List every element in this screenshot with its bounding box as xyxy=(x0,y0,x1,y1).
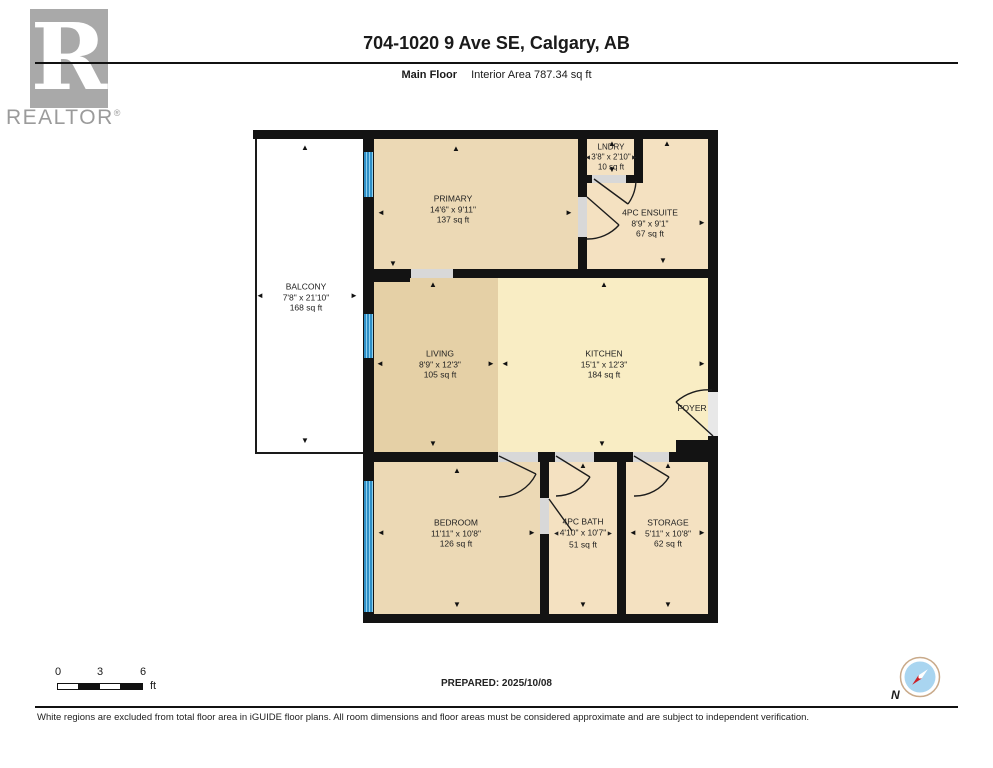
dimension-arrow: ▲ xyxy=(452,145,460,153)
compass-n-label: N xyxy=(891,688,900,702)
disclaimer-text: White regions are excluded from total fl… xyxy=(37,712,967,723)
dimension-arrow: ▼ xyxy=(389,260,397,268)
dimension-arrow: ► xyxy=(698,529,706,537)
dim-arrow-right-icon: ► xyxy=(631,154,638,161)
scale-tick-0: 0 xyxy=(55,666,61,678)
dimension-arrow: ▼ xyxy=(429,440,437,448)
room-label-primary: PRIMARY 14'6" x 9'11" 137 sq ft xyxy=(430,193,476,225)
dimension-arrow: ▼ xyxy=(579,601,587,609)
wall-step xyxy=(363,269,410,282)
wall xyxy=(363,614,718,623)
door-opening xyxy=(411,269,453,278)
room-label-storage: STORAGE 5'11" x 10'8" 62 sq ft xyxy=(645,517,691,549)
door-opening xyxy=(540,498,549,534)
dimension-arrow: ▲ xyxy=(453,467,461,475)
door-opening xyxy=(578,197,587,237)
dimension-arrow: ◄ xyxy=(377,529,385,537)
dimension-arrow: ▲ xyxy=(301,144,309,152)
door-opening xyxy=(498,452,538,462)
dimension-arrow: ▼ xyxy=(598,440,606,448)
room-label-bedroom: BEDROOM 11'11" x 10'8" 126 sq ft xyxy=(431,517,481,549)
dimension-arrow: ◄ xyxy=(629,529,637,537)
dimension-arrow: ► xyxy=(565,209,573,217)
dimension-arrow: ▲ xyxy=(600,281,608,289)
dimension-arrow: ▼ xyxy=(453,601,461,609)
dimension-arrow: ▼ xyxy=(608,166,616,174)
dimension-arrow: ► xyxy=(698,360,706,368)
prepared-label: PREPARED: 2025/10/08 xyxy=(0,678,993,689)
dimension-arrow: ▲ xyxy=(579,462,587,470)
scale-tick-6: 6 xyxy=(140,666,146,678)
room-label-kitchen: KITCHEN 15'1" x 12'3" 184 sq ft xyxy=(581,348,628,380)
realtor-logo-letter: R xyxy=(31,11,107,103)
scale-tick-3: 3 xyxy=(97,666,103,678)
dimension-arrow: ► xyxy=(528,529,536,537)
wall xyxy=(708,139,718,623)
window xyxy=(364,152,373,197)
dimension-arrow: ◄ xyxy=(256,292,264,300)
dimension-arrow: ▲ xyxy=(663,140,671,148)
room-primary-fill xyxy=(374,139,578,270)
door-opening xyxy=(555,452,594,462)
dimension-arrow: ► xyxy=(698,219,706,227)
dimension-arrow: ▼ xyxy=(664,601,672,609)
dimension-arrow: ▼ xyxy=(301,437,309,445)
dimension-arrow: ▲ xyxy=(664,462,672,470)
room-label-bath: 4PC BATH ◄4'10" x 10'7"► 51 sq ft xyxy=(553,516,614,550)
wall xyxy=(253,130,718,139)
entry-door-opening xyxy=(708,392,718,436)
dimension-arrow: ► xyxy=(350,292,358,300)
realtor-logo: R xyxy=(30,9,108,108)
window xyxy=(364,481,373,612)
dim-arrow-left-icon: ◄ xyxy=(584,154,591,161)
dimension-arrow: ▼ xyxy=(659,257,667,265)
dimension-arrow: ▲ xyxy=(429,281,437,289)
compass-icon xyxy=(899,656,941,698)
dim-arrow-left-icon: ◄ xyxy=(553,530,560,537)
floor-plan: BALCONY 7'8" x 21'10" 168 sq ft PRIMARY … xyxy=(0,0,993,768)
wall-foyer-block xyxy=(676,440,708,462)
room-label-foyer: FOYER xyxy=(677,403,706,414)
dimension-arrow: ▲ xyxy=(608,140,616,148)
footer-rule xyxy=(35,706,958,708)
dimension-arrow: ◄ xyxy=(377,209,385,217)
dimension-arrow: ◄ xyxy=(501,360,509,368)
window xyxy=(364,314,373,358)
wall xyxy=(540,462,549,615)
dim-arrow-right-icon: ► xyxy=(606,530,613,537)
room-ensuite-fill xyxy=(643,139,708,183)
header-rule xyxy=(35,62,958,64)
dimension-arrow: ◄ xyxy=(376,360,384,368)
door-opening xyxy=(592,175,626,183)
room-label-balcony: BALCONY 7'8" x 21'10" 168 sq ft xyxy=(283,281,330,313)
wall xyxy=(617,462,626,615)
dimension-arrow: ► xyxy=(487,360,495,368)
room-label-living: LIVING 8'9" x 12'3" 105 sq ft xyxy=(419,348,461,380)
room-label-ensuite: 4PC ENSUITE 8'9" x 9'1" 67 sq ft xyxy=(622,207,678,239)
